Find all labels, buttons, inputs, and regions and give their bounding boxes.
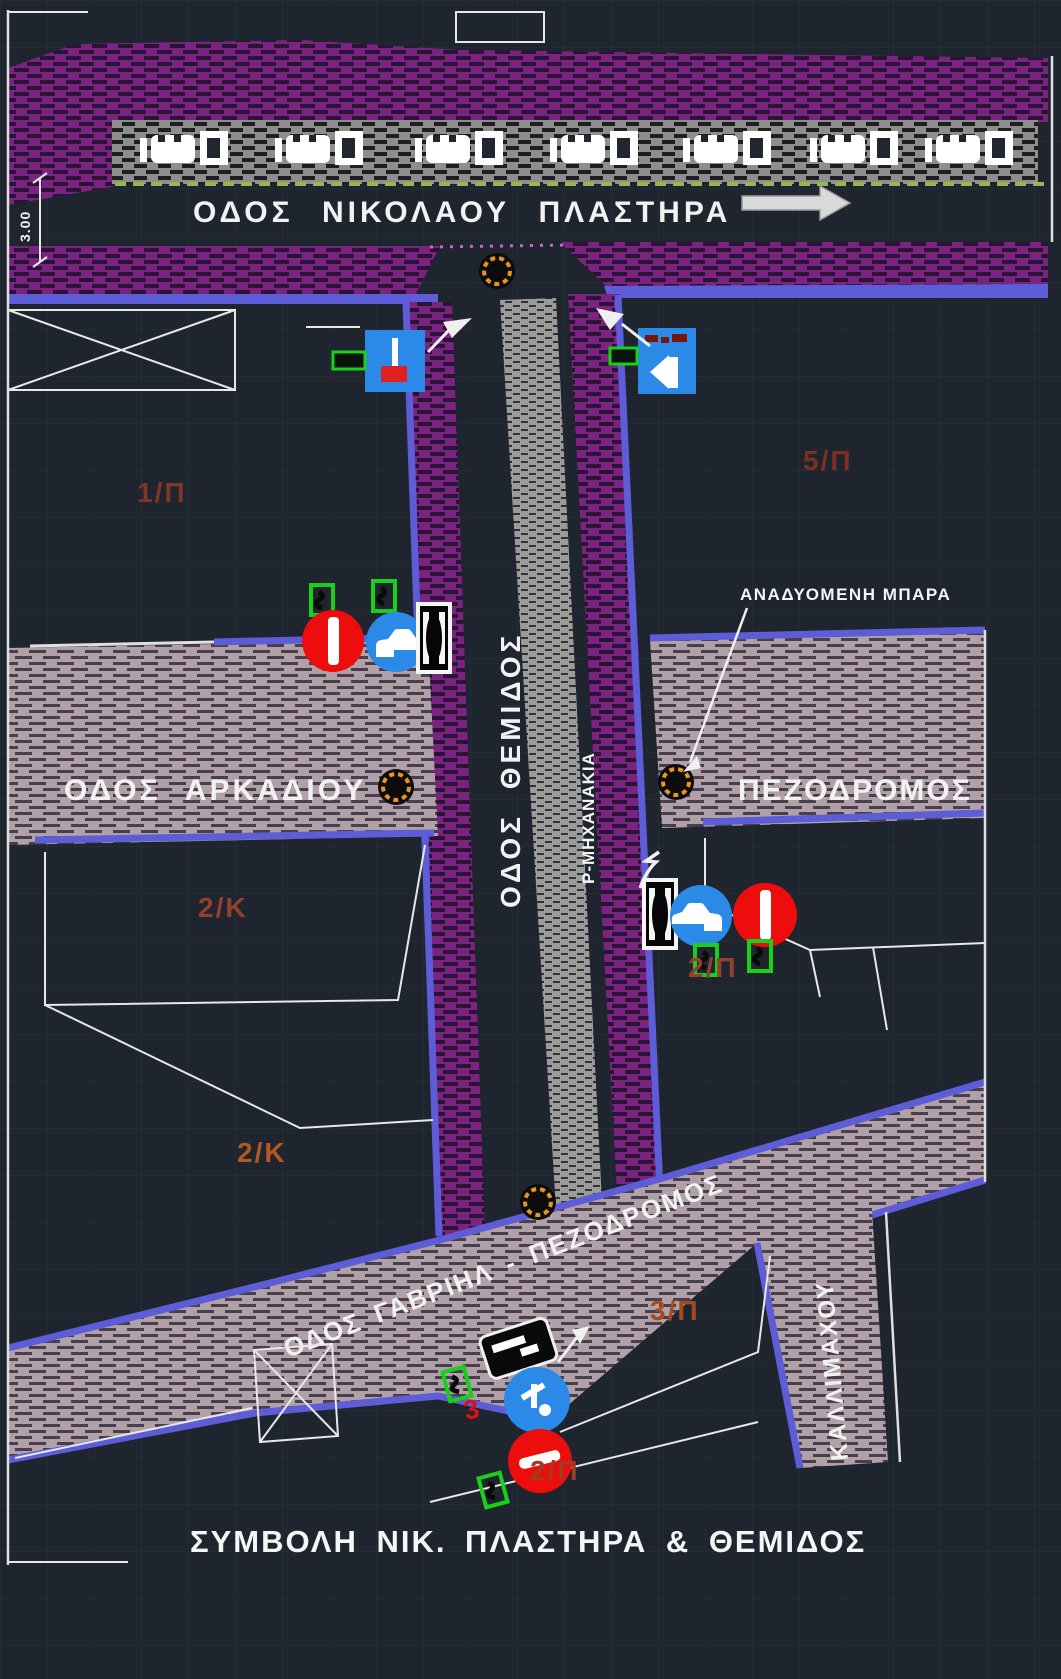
drawing-title: ΣΥΜΒΟΛΗ ΝΙΚ. ΠΛΑΣΤΗΡΑ & ΘΕΜΙΔΟΣ bbox=[190, 1524, 866, 1559]
rising-bollard-label: ΑΝΑΔΥΟΜΕΝΗ ΜΠΑΡΑ bbox=[740, 585, 951, 604]
zone-label: 2/Κ bbox=[237, 1137, 287, 1168]
zone-label: 2/Κ bbox=[198, 892, 248, 923]
bollard-icon bbox=[378, 769, 414, 805]
sign-mount-bracket bbox=[610, 348, 637, 364]
road-arkadiou bbox=[8, 637, 438, 845]
cad-street-plan: ΟΔΟΣ ΝΙΚΟΛΑΟΥ ΠΛΑΣΤΗΡΑ 3.00 ΟΔΟΣ ΘΕΜΙΔΟΣ… bbox=[0, 0, 1061, 1679]
curb-edge bbox=[8, 294, 438, 304]
bollard-icon bbox=[479, 253, 515, 289]
panel-sign-icon bbox=[418, 604, 450, 672]
plan-drawing: ΟΔΟΣ ΝΙΚΟΛΑΟΥ ΠΛΑΣΤΗΡΑ 3.00 ΟΔΟΣ ΘΕΜΙΔΟΣ… bbox=[0, 0, 1061, 1679]
zone-label: 3/Π bbox=[650, 1295, 700, 1326]
moto-parking-label: Ρ-ΜΗΧΑΝΑΚΙΑ bbox=[579, 752, 598, 884]
street-name-pezodromos: ΠΕΖΟΔΡΟΜΟΣ bbox=[738, 774, 972, 807]
zone-label: 1/Π bbox=[137, 477, 187, 508]
dimension-value: 3.00 bbox=[17, 211, 33, 242]
street-name-plastira: ΟΔΟΣ ΝΙΚΟΛΑΟΥ ΠΛΑΣΤΗΡΑ bbox=[193, 196, 731, 229]
street-name-arkadiou: ΟΔΟΣ ΑΡΚΑΔΙΟΥ bbox=[64, 774, 366, 807]
zone-label: 2/Π bbox=[530, 1455, 580, 1486]
zone-label: 2/Π bbox=[688, 952, 738, 983]
street-name-themidos: ΟΔΟΣ ΘΕΜΙΔΟΣ bbox=[495, 632, 526, 908]
bollard-icon bbox=[520, 1184, 556, 1220]
curb-edge bbox=[604, 284, 1048, 298]
sign-mount-bracket bbox=[333, 352, 365, 369]
zone-label: 5/Π bbox=[803, 445, 853, 476]
